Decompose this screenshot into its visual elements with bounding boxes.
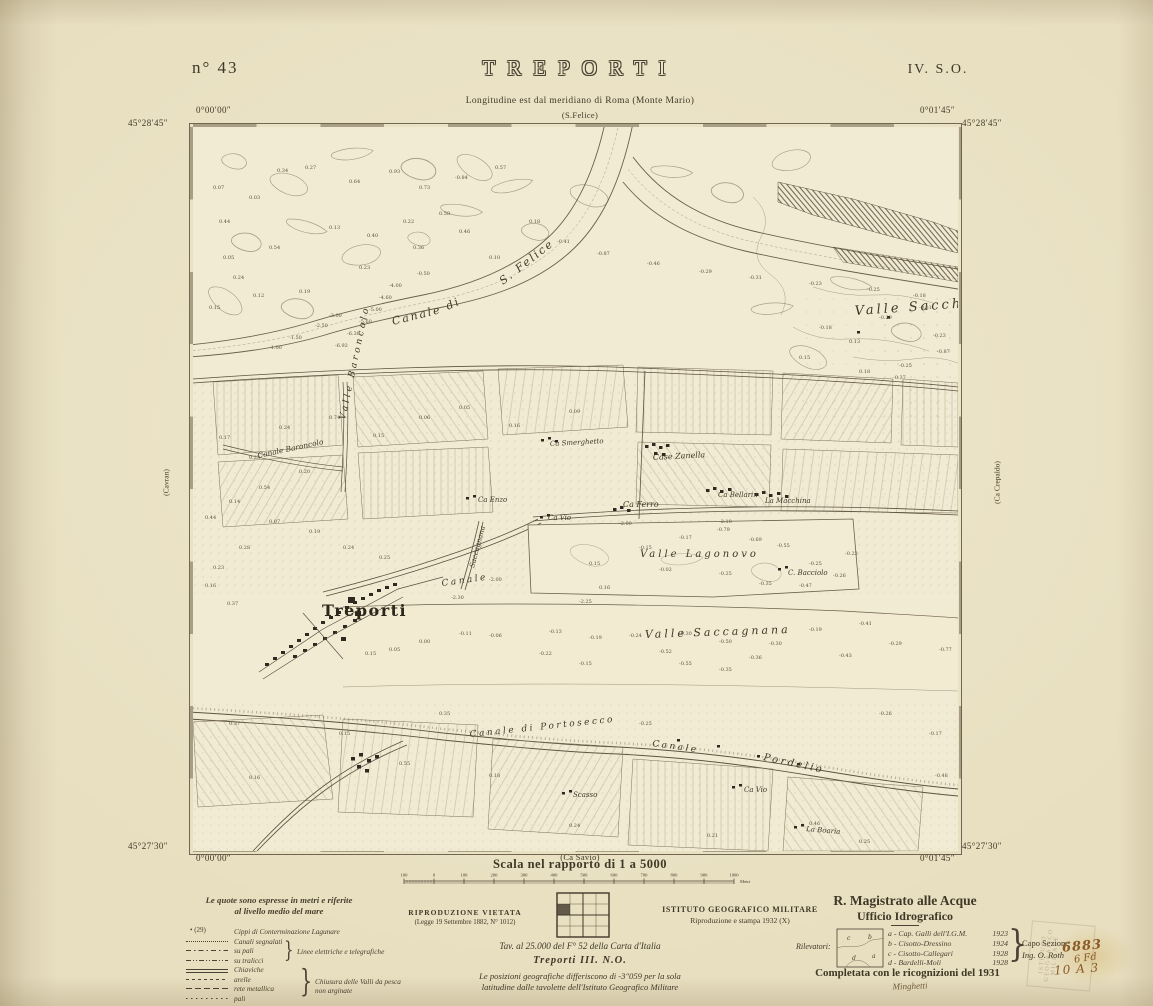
map-label: Ca Vio xyxy=(548,514,571,522)
completion-note: Completata con le ricognizioni del 1931 xyxy=(790,967,1025,979)
sounding-value: 0.05 xyxy=(459,405,470,411)
scale-tick-label: 800 xyxy=(671,873,679,878)
sounding-value: -3.00 xyxy=(329,313,342,319)
legend-item-label: Chiaviche xyxy=(234,965,264,974)
scale-tick-label: 100 xyxy=(401,873,409,878)
sounding-value: 0.09 xyxy=(569,409,580,415)
coord-lon-top-right: 0°01′45″ xyxy=(845,105,955,115)
legend-item-label: arelle xyxy=(234,975,251,984)
sounding-value: 0.19 xyxy=(299,289,310,295)
sounding-value: 0.54 xyxy=(269,245,280,251)
sounding-value: 0.25 xyxy=(379,555,390,561)
map-label: Valle Lagonovo xyxy=(640,549,759,560)
sounding-value: 0.10 xyxy=(489,255,500,261)
legend-block: Le quote sono espresse in metri e riferi… xyxy=(184,895,384,1005)
surveyor-name: c - Cisotto-Callegari xyxy=(888,949,953,959)
sounding-value: -0.50 xyxy=(417,271,430,277)
sounding-value: 0.44 xyxy=(219,219,230,225)
coord-lat-bottom-left: 45°27′30″ xyxy=(128,841,168,851)
sounding-value: 0.34 xyxy=(277,168,288,174)
scale-tick-label: 600 xyxy=(611,873,619,878)
legend-brace-valli: } xyxy=(300,964,312,999)
legend-item-label: Canali segnalati xyxy=(234,937,282,946)
map-title: TREPORTI xyxy=(380,56,780,81)
igm-print-note: Riproduzione e stampa 1932 (X) xyxy=(660,916,820,925)
sounding-value: -0.48 xyxy=(935,773,948,779)
sounding-value: -0.02 xyxy=(659,567,672,573)
legend-line-sample xyxy=(186,998,228,1000)
sounding-value: 0.17 xyxy=(219,435,230,441)
sounding-value: -0.52 xyxy=(659,649,672,655)
coord-lat-top-left: 45°28′45″ xyxy=(128,118,168,128)
sounding-value: 0.15 xyxy=(589,561,600,567)
sounding-value: 0.06 xyxy=(419,415,430,421)
map-label: La Macchina xyxy=(764,497,811,505)
surveyor-year: 1923 xyxy=(992,929,1008,939)
sounding-value: -0.55 xyxy=(679,661,692,667)
legend-group-valli-line2: non arginate xyxy=(315,986,352,995)
sounding-value: 0.18 xyxy=(859,369,870,375)
handwritten-shelf-mark: 10 A 3 xyxy=(1054,960,1100,977)
sheet-number: n° 43 xyxy=(192,58,239,78)
sounding-value: 0.20 xyxy=(299,469,310,475)
surveyor-year: 1928 xyxy=(992,949,1008,959)
sounding-value: -0.23 xyxy=(933,333,946,339)
sounding-value: -0.43 xyxy=(839,653,852,659)
sounding-value: -2.25 xyxy=(579,599,592,605)
adjacent-sheet-top: (S.Felice) xyxy=(480,110,680,120)
sounding-value: 0.57 xyxy=(495,165,506,171)
surveyor-name: b - Cisotto-Dressino xyxy=(888,939,951,949)
sounding-value: -0.35 xyxy=(719,667,732,673)
sounding-value: 0.15 xyxy=(373,433,384,439)
sounding-value: -0.19 xyxy=(809,627,822,633)
sounding-value: 0.05 xyxy=(223,255,234,261)
sounding-value: 0.16 xyxy=(509,423,520,429)
sounding-value: 0.23 xyxy=(213,565,224,571)
sounding-value: -2.00 xyxy=(619,521,632,527)
sounding-value: 0.73 xyxy=(419,185,430,191)
sounding-value: -0.29 xyxy=(699,269,712,275)
sounding-value: -0.87 xyxy=(597,251,610,257)
sounding-value: -1.50 xyxy=(289,335,302,341)
sounding-value: -0.26 xyxy=(879,711,892,717)
legend-brace-lines: } xyxy=(284,937,294,964)
sounding-value: 0.44 xyxy=(205,515,216,521)
sounding-value: 0.05 xyxy=(389,647,400,653)
valle-saccagnana xyxy=(343,604,958,691)
sounding-value: 0.03 xyxy=(249,195,260,201)
sounding-value: 0.46 xyxy=(459,229,470,235)
sounding-value: -0.84 xyxy=(455,175,468,181)
scale-tick-label: 300 xyxy=(521,873,529,878)
sounding-value: 0.15 xyxy=(339,731,350,737)
sounding-value: 0.15 xyxy=(799,355,810,361)
adjacent-sheet-right: (Ca Crepaldo) xyxy=(993,438,1002,528)
sounding-value: 0.36 xyxy=(413,245,424,251)
legend-title-line2: al livello medio del mare xyxy=(184,906,374,916)
sounding-value: 0.13 xyxy=(849,339,860,345)
sounding-value: -0.18 xyxy=(913,293,926,299)
sounding-value: -0.41 xyxy=(859,621,872,627)
sounding-value: 0.28 xyxy=(239,545,250,551)
surveyor-name: a - Cap. Galli dell'I.G.M. xyxy=(888,929,967,939)
sounding-value: 0.37 xyxy=(227,601,238,607)
agency-name-line1: R. Magistrato alle Acque xyxy=(810,893,1000,909)
tav-reference: Tav. al 25.000 del F° 52 della Carta d'I… xyxy=(460,941,700,951)
surveyor-row: b - Cisotto-Dressino1924 xyxy=(888,939,1008,949)
legend-title-line1: Le quote sono espresse in metri e riferi… xyxy=(184,895,374,905)
sounding-value: 0.16 xyxy=(599,585,610,591)
sounding-value: 0.40 xyxy=(367,233,378,239)
sounding-value: 0.54 xyxy=(259,485,270,491)
coord-lat-top-right: 45°28′45″ xyxy=(962,118,1002,128)
sounding-value: 0.15 xyxy=(209,305,220,311)
scale-tick-label: 900 xyxy=(701,873,709,878)
scale-tick-label: 700 xyxy=(641,873,649,878)
legend-item-label: Cippi di Conterminazione Lagunare xyxy=(234,927,340,936)
coord-lat-bottom-right: 45°27′30″ xyxy=(962,841,1002,851)
sounding-value: 0.07 xyxy=(213,185,224,191)
sounding-value: -0.25 xyxy=(719,571,732,577)
sounding-value: -0.06 xyxy=(489,633,502,639)
sounding-value: 0.16 xyxy=(205,583,216,589)
sounding-value: -0.36 xyxy=(749,655,762,661)
scale-unit: Metri xyxy=(740,879,751,884)
legend-item-label: rete metallica xyxy=(234,984,274,993)
legend-line-sample xyxy=(186,960,228,961)
sounding-value: 0.13 xyxy=(329,225,340,231)
scale-caption: Scala nel rapporto di 1 a 5000 xyxy=(400,857,760,872)
sketch-region-letter: b xyxy=(868,934,872,941)
surveyors-sketch: abcd xyxy=(836,928,884,968)
surveyors-label: Rilevatori: xyxy=(796,942,831,951)
legend-group-valli-line1: Chiusura delle Valli da pesca xyxy=(315,977,401,986)
scale-tick-label: 0 xyxy=(433,873,436,878)
legend-cippi-symbol: • (29) xyxy=(190,926,206,934)
sounding-value: -4.00 xyxy=(389,283,402,289)
map-label: Ca Enzo xyxy=(478,496,507,504)
sounding-value: -0.69 xyxy=(749,537,762,543)
sounding-value: 0.21 xyxy=(707,833,718,839)
marsh-strip-right xyxy=(883,297,958,512)
sounding-value: 0.24 xyxy=(343,545,354,551)
surveyors-list: a - Cap. Galli dell'I.G.M.1923b - Cisott… xyxy=(888,929,1008,968)
sounding-value: 0.18 xyxy=(529,219,540,225)
sounding-value: -0.13 xyxy=(549,629,562,635)
sounding-value: 0.58 xyxy=(439,211,450,217)
sounding-value: -0.24 xyxy=(629,633,642,639)
scale-tick-label: 1000 xyxy=(729,873,739,878)
sounding-value: -0.25 xyxy=(867,287,880,293)
legend-line-sample xyxy=(186,988,228,989)
sounding-value: -4.60 xyxy=(379,295,392,301)
sounding-value: -2.10 xyxy=(719,519,732,525)
agency-divider xyxy=(891,925,919,926)
reproduction-notice: RIPRODUZIONE VIETATA xyxy=(380,908,550,917)
coord-lon-top-left: 0°00′00″ xyxy=(196,105,231,115)
sounding-value: 0.93 xyxy=(389,169,400,175)
sounding-value: -0.50 xyxy=(719,639,732,645)
geo-note-line1: Le posizioni geografiche differiscono di… xyxy=(420,971,740,981)
scale-tick-label: 100 xyxy=(461,873,469,878)
map-label: Scasso xyxy=(573,791,597,799)
scale-tick-label: 500 xyxy=(581,873,589,878)
sounding-value: -2.00 xyxy=(489,577,502,583)
sounding-value: 0.00 xyxy=(419,639,430,645)
sounding-value: -0.15 xyxy=(579,661,592,667)
legend-line-sample xyxy=(186,950,228,951)
surveyor-year: 1924 xyxy=(992,939,1008,949)
map-body: 0.270.640.930.73-0.840.570.030.440.540.2… xyxy=(193,127,958,851)
sounding-value: -0.46 xyxy=(647,261,660,267)
legend-line-sample xyxy=(186,969,228,973)
sounding-value: 0.18 xyxy=(489,773,500,779)
sketch-region-letter: c xyxy=(847,935,851,942)
legend-item-label: su pali xyxy=(234,946,254,955)
meridian-subtitle: Longitudine est dal meridiano di Roma (M… xyxy=(330,96,830,106)
sounding-value: -0.23 xyxy=(809,281,822,287)
reproduction-law: (Legge 19 Settembre 1882, N° 1012) xyxy=(380,919,550,926)
sounding-value: 0.07 xyxy=(269,519,280,525)
legend-row: Chiaviche xyxy=(184,965,384,974)
surveyor-row: c - Cisotto-Callegari1928 xyxy=(888,949,1008,959)
legend-row: • (29)Cippi di Conterminazione Lagunare xyxy=(184,927,384,936)
sounding-value: -0.19 xyxy=(589,635,602,641)
sounding-value: 0.19 xyxy=(309,529,320,535)
sounding-value: -0.26 xyxy=(833,573,846,579)
sounding-value: -0.41 xyxy=(557,239,570,245)
sounding-value: -0.35 xyxy=(759,581,772,587)
map-label: Ca Bellarin xyxy=(718,491,758,499)
sounding-value: -0.18 xyxy=(819,325,832,331)
geo-note-line2: latitudine dalle tavolette dell'Istituto… xyxy=(420,982,740,992)
map-label: Treporti xyxy=(322,601,407,620)
legend-line-sample xyxy=(186,979,228,980)
sounding-value: -0.25 xyxy=(809,561,822,567)
quadrant-label: IV. S.O. xyxy=(878,62,998,78)
legend-line-sample xyxy=(186,941,228,945)
sounding-value: -0.17 xyxy=(679,535,692,541)
sounding-value: 0.23 xyxy=(359,265,370,271)
sounding-value: 0.37 xyxy=(229,721,240,727)
legend-group-electric: Linee elettriche e telegrafiche xyxy=(297,947,384,956)
sounding-value: -0.22 xyxy=(845,551,858,557)
graticule-ticks-right xyxy=(959,127,962,851)
sounding-value: -0.37 xyxy=(893,375,906,381)
sounding-value: -0.47 xyxy=(799,583,812,589)
sounding-value: -0.79 xyxy=(717,527,730,533)
sounding-value: -0.25 xyxy=(639,721,652,727)
sounding-value: -0.87 xyxy=(937,349,950,355)
sounding-value: -0.17 xyxy=(929,731,942,737)
sounding-value: 0.35 xyxy=(439,711,450,717)
sounding-value: 0.12 xyxy=(253,293,264,299)
scale-tick-label: 200 xyxy=(491,873,499,878)
map-label: Ca Ferro xyxy=(623,500,659,509)
igm-name: ISTITUTO GEOGRAFICO MILITARE xyxy=(660,905,820,914)
sounding-value: -0.30 xyxy=(769,641,782,647)
sheet-index-grid xyxy=(556,892,610,938)
sounding-value: -0.11 xyxy=(459,631,472,637)
sounding-value: -6.92 xyxy=(335,343,348,349)
sounding-value: -0.55 xyxy=(777,543,790,549)
sounding-value: -0.22 xyxy=(539,651,552,657)
legend-row: pali xyxy=(184,994,384,1003)
sounding-value: 0.24 xyxy=(279,425,290,431)
agency-name-line2: Ufficio Idrografico xyxy=(810,909,1000,924)
sounding-value: -1.00 xyxy=(269,345,282,351)
sounding-value: -0.31 xyxy=(749,275,762,281)
sounding-value: 0.24 xyxy=(233,275,244,281)
sounding-value: 0.64 xyxy=(349,179,360,185)
sounding-value: 0.55 xyxy=(399,761,410,767)
sounding-value: -0.25 xyxy=(899,363,912,369)
sounding-value: -0.77 xyxy=(939,647,952,653)
sketch-region-letter: a xyxy=(872,953,876,960)
legend-item-label: pali xyxy=(234,994,245,1003)
sketch-region-letter: d xyxy=(852,955,856,962)
sounding-value: -2.50 xyxy=(315,323,328,329)
sounding-value: 0.27 xyxy=(305,165,316,171)
scale-bar: 10001002003004005006007008009001000Metri xyxy=(400,872,760,890)
sounding-value: -2.30 xyxy=(451,595,464,601)
legend-item-label: su tralicci xyxy=(234,956,263,965)
map-label: Ca Vio xyxy=(744,786,767,794)
tav-sheet-name: Treporti III. N.O. xyxy=(460,955,700,966)
scanned-map-sheet: { "header": { "sheet_no": "n° 43", "titl… xyxy=(0,0,1153,1006)
adjacent-sheet-left: (Cavran) xyxy=(162,443,171,523)
sounding-value: 0.25 xyxy=(859,839,870,845)
sounding-value: 0.24 xyxy=(569,823,580,829)
map-label: C. Bacciolo xyxy=(788,569,828,577)
sounding-value: -0.29 xyxy=(889,641,902,647)
signature: Minghetti xyxy=(850,979,970,993)
scale-tick-label: 400 xyxy=(551,873,559,878)
sounding-value: 0.16 xyxy=(249,775,260,781)
sounding-value: 0.15 xyxy=(365,651,376,657)
sounding-value: 0.22 xyxy=(403,219,414,225)
surveyor-row: a - Cap. Galli dell'I.G.M.1923 xyxy=(888,929,1008,939)
sounding-value: 0.14 xyxy=(229,499,240,505)
